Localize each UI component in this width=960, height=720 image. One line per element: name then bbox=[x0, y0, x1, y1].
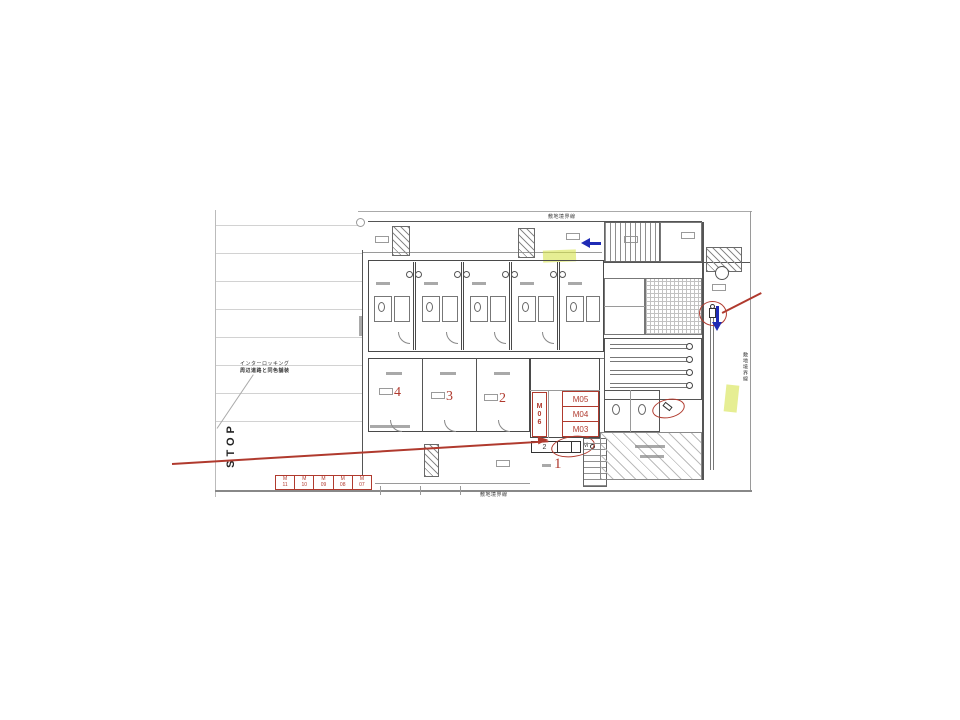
circled-fixture-topright bbox=[709, 308, 716, 318]
plan-left-wall bbox=[362, 250, 363, 490]
ramp-text bbox=[640, 455, 664, 458]
meter-row-cell: M 11 bbox=[276, 476, 295, 489]
grid-line bbox=[215, 337, 362, 338]
red-pointer-arrowhead bbox=[538, 436, 549, 445]
ramp-text bbox=[635, 445, 665, 448]
blue-arrow-left-head bbox=[581, 238, 590, 248]
room-label-text bbox=[520, 282, 534, 285]
fence-line bbox=[710, 318, 711, 470]
grid-line bbox=[215, 309, 362, 310]
stop-marking: STOP bbox=[225, 417, 239, 473]
pipe-shaft-circle bbox=[550, 271, 557, 278]
grid-line bbox=[215, 225, 362, 226]
pipe-shaft-circle bbox=[454, 271, 461, 278]
room-dim-label bbox=[484, 394, 498, 401]
room-label-text bbox=[424, 282, 438, 285]
toilet-fixture bbox=[474, 302, 481, 312]
boundary-label-right: 敷地境界線 bbox=[742, 352, 747, 382]
pipe-shaft-circle bbox=[511, 271, 518, 278]
rack-end-circle bbox=[686, 382, 693, 389]
rack-lane bbox=[610, 383, 688, 388]
unit-bath bbox=[490, 296, 506, 322]
boundary-label-bottom: 敷地境界線 bbox=[480, 492, 508, 499]
toilet-fixture bbox=[612, 404, 620, 415]
tactile-paving-note bbox=[370, 425, 410, 428]
meter-cell-m04: M04 bbox=[563, 407, 598, 422]
grid-bubble bbox=[356, 218, 365, 227]
red-leader-topright bbox=[722, 292, 762, 313]
wc-divider bbox=[630, 390, 631, 432]
shaft-hatch bbox=[392, 226, 410, 256]
site-boundary-right bbox=[750, 211, 751, 491]
pipe-shaft-circle bbox=[559, 271, 566, 278]
small-note-text bbox=[542, 464, 551, 467]
site-boundary-left bbox=[215, 210, 216, 497]
room-label-text bbox=[376, 282, 390, 285]
building-right-wall bbox=[702, 222, 704, 480]
meter-cell-bottom: 07 bbox=[353, 482, 371, 488]
circled-fixture-cap bbox=[710, 304, 715, 309]
floor-plan-page: インターロッキング 周辺道路と同色舗装 STOP 敷地境界線 敷地境界線 敷地境… bbox=[0, 0, 960, 720]
boundary-tick bbox=[460, 486, 461, 495]
rack-lane bbox=[610, 370, 688, 375]
red-room-number-2: 2 bbox=[499, 392, 506, 406]
grid-line bbox=[215, 393, 362, 394]
shaft-hatch bbox=[518, 228, 535, 258]
boundary-tick bbox=[420, 486, 421, 495]
boundary-tick bbox=[380, 486, 381, 495]
courtyard-line bbox=[375, 483, 530, 484]
room-name-text bbox=[440, 372, 456, 375]
meter-box-m06-label: M06 bbox=[536, 403, 543, 427]
fence-line bbox=[713, 318, 714, 470]
room-divider bbox=[476, 358, 477, 432]
meter-stack-m05-m04-m03: M05 M04 M03 bbox=[562, 391, 599, 437]
site-boundary-top bbox=[358, 211, 752, 212]
dim-label bbox=[712, 284, 726, 291]
meter-row-cell: M 09 bbox=[314, 476, 333, 489]
room-dim-label bbox=[379, 388, 393, 395]
pipe-shaft-circle bbox=[502, 271, 509, 278]
toilet-fixture bbox=[378, 302, 385, 312]
rack-lane bbox=[610, 357, 688, 362]
meter-row-cell: M 08 bbox=[334, 476, 353, 489]
dim-label bbox=[375, 236, 389, 243]
rack-end-circle bbox=[686, 356, 693, 363]
toilet-fixture bbox=[426, 302, 433, 312]
unit-bath bbox=[442, 296, 458, 322]
stair-flight-top bbox=[604, 222, 660, 262]
interlocking-note-line2: 周辺道路と同色舗装 bbox=[240, 368, 290, 375]
unit-bath bbox=[394, 296, 410, 322]
grid-line bbox=[215, 281, 362, 282]
rack-end-circle bbox=[686, 369, 693, 376]
room-label-text bbox=[568, 282, 582, 285]
blue-arrow-down-head bbox=[712, 322, 722, 331]
room-name-text bbox=[386, 372, 402, 375]
room-divider bbox=[604, 306, 645, 307]
meter-cell-bottom: 09 bbox=[314, 482, 332, 488]
meter-row-cell: M 07 bbox=[353, 476, 371, 489]
toilet-fixture bbox=[570, 302, 577, 312]
room-divider bbox=[422, 358, 423, 432]
meter-cell-bottom: 08 bbox=[334, 482, 352, 488]
unit-bath bbox=[538, 296, 554, 322]
column-circle bbox=[715, 266, 729, 280]
meter-row-cell: M 10 bbox=[295, 476, 314, 489]
rack-end-circle bbox=[686, 343, 693, 350]
grid-line bbox=[215, 253, 362, 254]
red-area-number-1: 1 bbox=[554, 457, 562, 472]
pipe-shaft-circle bbox=[415, 271, 422, 278]
meter-cell-bottom: 10 bbox=[295, 482, 313, 488]
meter-cell-m03: M03 bbox=[563, 422, 598, 436]
pipe-shaft-circle bbox=[406, 271, 413, 278]
meter-row-table: M 11 M 10 M 09 M 08 M 07 bbox=[275, 475, 372, 490]
room-outline bbox=[660, 222, 702, 262]
stair-hall-grid bbox=[645, 278, 702, 335]
highlighter-mark bbox=[724, 384, 740, 412]
unit-bath bbox=[586, 296, 600, 322]
red-room-number-3: 3 bbox=[446, 390, 453, 404]
room-dim-label bbox=[431, 392, 445, 399]
toilet-fixture bbox=[638, 404, 646, 415]
meter-cell-bottom: 11 bbox=[276, 482, 294, 488]
room-name-text bbox=[494, 372, 510, 375]
meter-box-m06: M06 bbox=[532, 392, 547, 437]
rack-lane bbox=[610, 344, 688, 349]
red-room-number-4: 4 bbox=[394, 386, 401, 400]
pipe-shaft-circle bbox=[463, 271, 470, 278]
meter-cell-m05: M05 bbox=[563, 392, 598, 407]
interlocking-note-line1: インターロッキング bbox=[240, 361, 289, 368]
dim-label bbox=[566, 233, 580, 240]
room-label-text bbox=[472, 282, 486, 285]
toilet-fixture bbox=[522, 302, 529, 312]
blue-arrow-left-tail bbox=[590, 242, 601, 245]
blue-arrow-down-tail bbox=[716, 306, 719, 323]
boundary-label-top: 敷地境界線 bbox=[548, 214, 576, 221]
core-inner-line bbox=[548, 390, 549, 438]
dim-label bbox=[496, 460, 510, 467]
